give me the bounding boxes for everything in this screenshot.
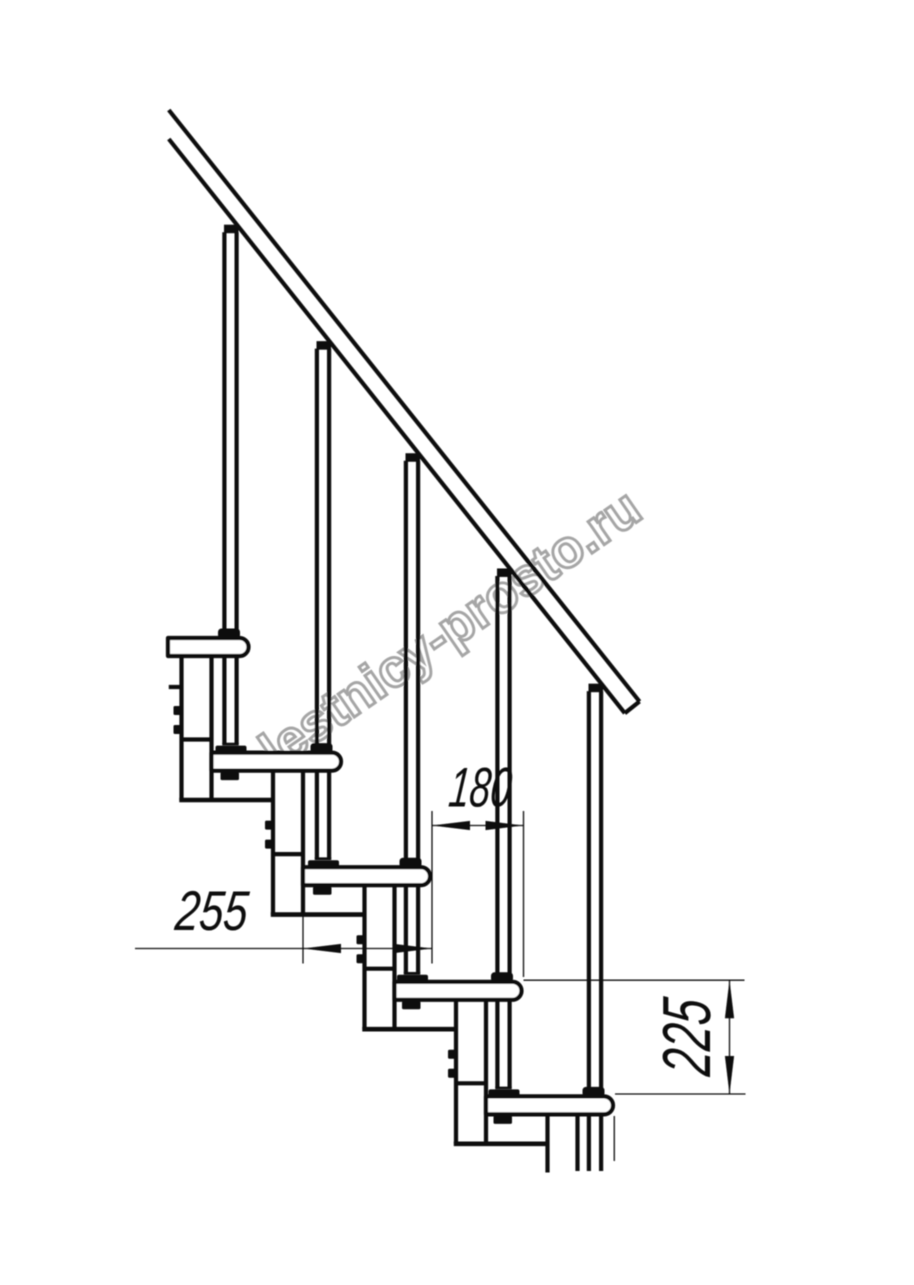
svg-text:255: 255 (172, 879, 252, 942)
svg-text:225: 225 (649, 994, 725, 1079)
svg-text:180: 180 (446, 756, 515, 819)
